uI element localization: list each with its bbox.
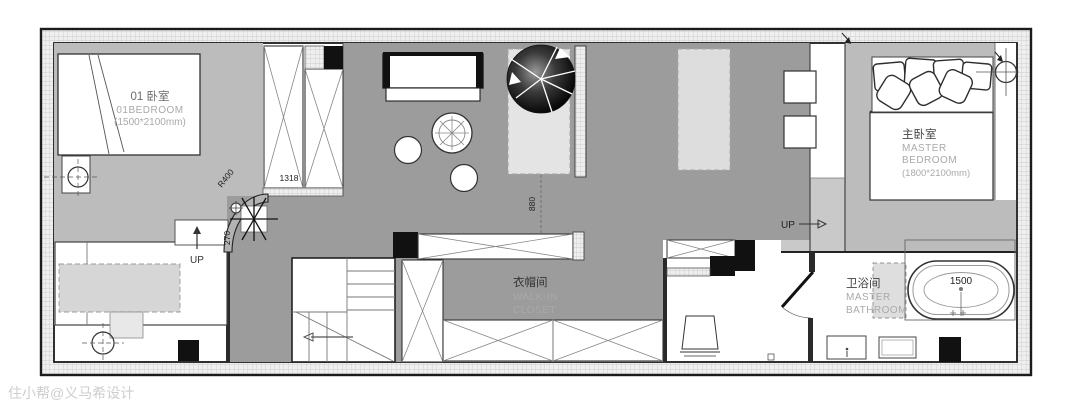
bedroom01-label-en: 01BEDROOM <box>116 105 183 116</box>
dim-1500: 1500 <box>950 276 973 287</box>
square-stool <box>784 116 816 148</box>
desk <box>175 220 228 245</box>
column-black <box>735 240 755 271</box>
rug <box>678 49 730 170</box>
watermark: 住小帮@义马希设计 <box>8 385 134 401</box>
master-bedroom-label-zh: 主卧室 <box>902 127 937 141</box>
column-black <box>393 232 418 258</box>
up-label-left: UP <box>190 255 204 266</box>
master-bedroom-size: (1800*2100mm) <box>902 168 970 179</box>
left-wardrobe: 1318 <box>263 46 343 196</box>
bathroom-label-en1: MASTER <box>846 292 891 303</box>
master-bedroom-label-en1: MASTER <box>902 143 947 154</box>
dim-880: 880 <box>527 197 537 211</box>
floor-plan-drawing: 01 卧室 01BEDROOM (1500*2100mm) 1318 UP <box>0 0 1080 413</box>
bedroom01-size: (1500*2100mm) <box>114 117 186 128</box>
staircase <box>292 258 395 362</box>
bathroom-label-zh: 卫浴间 <box>846 277 881 290</box>
round-stool <box>451 165 478 192</box>
floor-plan-page: 01 卧室 01BEDROOM (1500*2100mm) 1318 UP <box>0 0 1080 413</box>
dim-1318: 1318 <box>280 173 299 183</box>
sofa <box>383 54 483 88</box>
round-stool <box>395 137 422 164</box>
closet-label-zh: 衣帽间 <box>513 275 548 289</box>
bedroom01-label-zh: 01 卧室 <box>131 89 170 103</box>
column-black <box>324 46 343 69</box>
up-label-right: UP <box>781 220 795 231</box>
dim-270: 270 <box>222 231 232 245</box>
floor-corridor <box>810 178 845 252</box>
closet-label-en1: WALK-IN <box>513 292 558 303</box>
nightstand01 <box>62 156 90 193</box>
column-black <box>178 340 199 361</box>
column-black <box>710 256 735 276</box>
bathroom-label-en2: BATHROOM <box>846 305 907 316</box>
closet-label-en2: CLOSET <box>513 305 556 316</box>
square-stool <box>784 71 816 103</box>
column-black <box>939 337 961 362</box>
toilet <box>682 316 718 349</box>
master-bedroom-label-en2: BEDROOM <box>902 155 957 166</box>
